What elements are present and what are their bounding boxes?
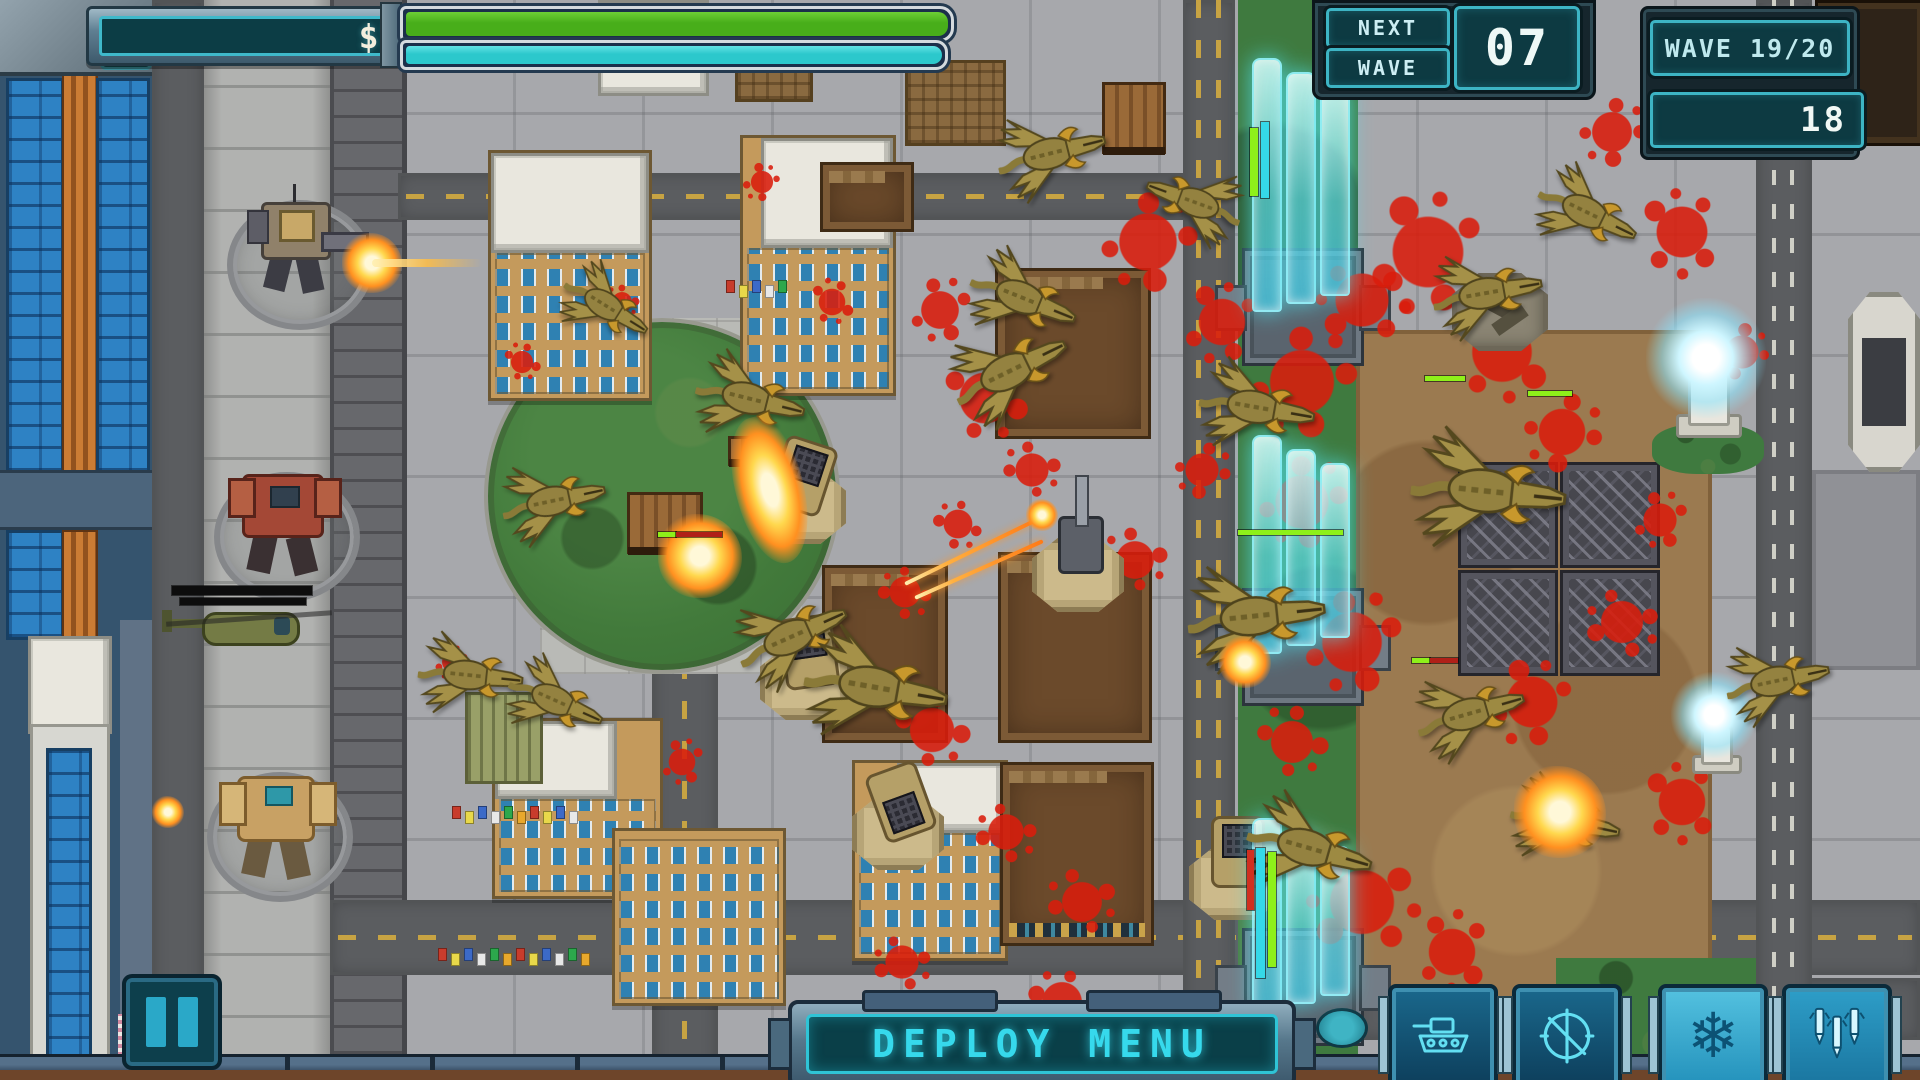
street-debris bbox=[556, 806, 565, 819]
teal-oval-pad bbox=[1316, 1008, 1368, 1048]
street-debris bbox=[568, 948, 577, 961]
tower-glass bbox=[46, 748, 92, 1080]
street-debris bbox=[503, 953, 512, 966]
mech-shoulder bbox=[247, 210, 269, 244]
explosion-flash bbox=[152, 796, 184, 828]
deploy-tab-right bbox=[1086, 990, 1222, 1012]
button-rail bbox=[1621, 996, 1632, 1074]
street-debris bbox=[778, 280, 787, 293]
street-debris bbox=[491, 811, 500, 824]
mech-missile-pod bbox=[228, 478, 256, 518]
hex-pad-core bbox=[1862, 338, 1906, 426]
energy-barrier-blade bbox=[1286, 72, 1316, 304]
kaiju-enemy bbox=[1405, 421, 1585, 564]
pause-icon bbox=[146, 997, 166, 1047]
deploy-lug-right bbox=[1292, 1018, 1316, 1070]
blood-splatter bbox=[866, 926, 939, 999]
street-debris bbox=[726, 280, 735, 293]
building-tan bbox=[612, 828, 786, 1006]
field-status-bar bbox=[1268, 852, 1276, 967]
street-debris bbox=[478, 806, 487, 819]
pause-icon bbox=[178, 997, 198, 1047]
wave-label-small: WAVE bbox=[1326, 48, 1450, 88]
glass-facade bbox=[96, 78, 150, 474]
ruined-building bbox=[820, 162, 914, 232]
heli-cockpit bbox=[274, 617, 290, 635]
glass-facade bbox=[6, 530, 64, 640]
street-debris bbox=[451, 953, 460, 966]
pipe-column bbox=[62, 530, 98, 638]
street-debris bbox=[464, 948, 473, 961]
bar-connector bbox=[380, 2, 402, 68]
rubble-edge bbox=[829, 171, 885, 183]
field-status-bar bbox=[1247, 850, 1254, 910]
energy-barrier-blade bbox=[1320, 86, 1350, 296]
field-status-bar bbox=[1412, 658, 1430, 663]
pipe-column bbox=[62, 64, 98, 480]
missile-launcher bbox=[882, 791, 926, 835]
blood-splatter bbox=[992, 430, 1071, 509]
ability-button-missile-strike[interactable] bbox=[1782, 984, 1892, 1080]
field-status-bar bbox=[180, 598, 306, 605]
street-debris bbox=[490, 948, 499, 961]
street-debris bbox=[529, 953, 538, 966]
glass-facade bbox=[6, 78, 64, 474]
field-status-bar bbox=[1238, 530, 1343, 535]
ability-button-freeze[interactable]: ❄ bbox=[1658, 984, 1768, 1080]
base-health-bar bbox=[400, 6, 954, 42]
field-status-bar bbox=[658, 532, 676, 537]
button-rail bbox=[1891, 996, 1902, 1074]
gun-turret-head[interactable] bbox=[1058, 516, 1104, 574]
rubble-edge bbox=[1009, 771, 1107, 783]
next-label: NEXT bbox=[1326, 8, 1450, 48]
base-shield-fill bbox=[406, 46, 942, 64]
building-windows bbox=[619, 839, 779, 999]
deploy-lug-left bbox=[768, 1018, 792, 1070]
mech-missile-pod bbox=[219, 782, 247, 826]
explosion-flash bbox=[1219, 636, 1271, 688]
explosion-flash bbox=[658, 514, 742, 598]
button-rail bbox=[1502, 996, 1513, 1074]
street-debris bbox=[739, 285, 748, 298]
street-debris bbox=[477, 953, 486, 966]
turret-reticle-icon bbox=[1538, 1007, 1596, 1065]
tower-cap bbox=[28, 636, 112, 734]
street-debris bbox=[555, 953, 564, 966]
field-status-bar bbox=[1261, 122, 1269, 198]
mech-cockpit bbox=[279, 210, 315, 242]
mech-missile-pod bbox=[314, 478, 342, 518]
street-debris bbox=[517, 811, 526, 824]
left-megastructure bbox=[0, 0, 152, 1080]
blood-splatter bbox=[1625, 485, 1695, 555]
field-status-bar bbox=[1430, 658, 1458, 663]
street-debris bbox=[752, 280, 761, 293]
field-status-bar bbox=[172, 586, 312, 595]
tank-icon bbox=[1411, 1012, 1475, 1060]
kaiju-enemy bbox=[1717, 626, 1846, 733]
street-debris bbox=[438, 948, 447, 961]
deploy-tab-left bbox=[862, 990, 998, 1012]
building-penthouse bbox=[491, 153, 649, 253]
next-wave-countdown: 07 bbox=[1454, 6, 1580, 90]
field-status-bar bbox=[1250, 128, 1258, 196]
ability-button-deploy-turret[interactable] bbox=[1512, 984, 1622, 1080]
muzzle-beam bbox=[372, 259, 482, 267]
gun-barrel bbox=[1075, 475, 1089, 527]
blood-splatter bbox=[656, 736, 707, 787]
field-status-bar bbox=[1425, 376, 1465, 381]
explosion-flash bbox=[1514, 766, 1606, 858]
mech-missile-pod bbox=[309, 782, 337, 826]
mid-walkway bbox=[0, 470, 152, 530]
street-debris bbox=[765, 285, 774, 298]
street-debris bbox=[465, 811, 474, 824]
muzzle-glow bbox=[1026, 499, 1058, 531]
game-map[interactable] bbox=[0, 0, 1920, 1080]
street-debris bbox=[516, 948, 525, 961]
blood-splatter bbox=[921, 487, 995, 561]
field-status-bar bbox=[1528, 391, 1572, 396]
missiles-icon bbox=[1806, 1005, 1868, 1067]
street-debris bbox=[569, 811, 578, 824]
deploy-menu-button[interactable]: DEPLOY MENU bbox=[788, 1000, 1296, 1080]
ability-button-deploy-tank[interactable] bbox=[1388, 984, 1498, 1080]
kaiju-enemy bbox=[493, 446, 622, 553]
enemies-remaining: 18 bbox=[1650, 92, 1864, 148]
deploy-menu-label: DEPLOY MENU bbox=[806, 1014, 1278, 1074]
street-debris bbox=[504, 806, 513, 819]
tesla-orb-glow bbox=[1646, 298, 1766, 418]
button-rail bbox=[1378, 996, 1389, 1074]
wave-progress: WAVE 19/20 bbox=[1650, 20, 1850, 76]
hex-pad bbox=[1848, 292, 1920, 472]
mech-antenna bbox=[293, 184, 296, 202]
street-debris bbox=[452, 806, 461, 819]
snowflake-icon: ❄ bbox=[1687, 1005, 1739, 1067]
base-shield-bar bbox=[400, 40, 948, 70]
mech-window bbox=[270, 486, 300, 508]
base-health-fill bbox=[406, 12, 948, 36]
street-debris bbox=[581, 953, 590, 966]
street-debris bbox=[543, 811, 552, 824]
field-status-bar bbox=[1256, 848, 1265, 978]
street-debris bbox=[530, 806, 539, 819]
button-rail bbox=[1648, 996, 1659, 1074]
mech-visor bbox=[265, 786, 293, 806]
game-screen: $5315 NEXT WAVE 07 WAVE 19/20 18 DEPLOY … bbox=[0, 0, 1920, 1080]
kaiju-enemy bbox=[1405, 652, 1545, 772]
field-status-bar bbox=[676, 532, 722, 537]
street-debris bbox=[542, 948, 551, 961]
button-rail bbox=[1772, 996, 1783, 1074]
kaiju-enemy bbox=[987, 94, 1125, 210]
pause-button[interactable] bbox=[122, 974, 222, 1070]
